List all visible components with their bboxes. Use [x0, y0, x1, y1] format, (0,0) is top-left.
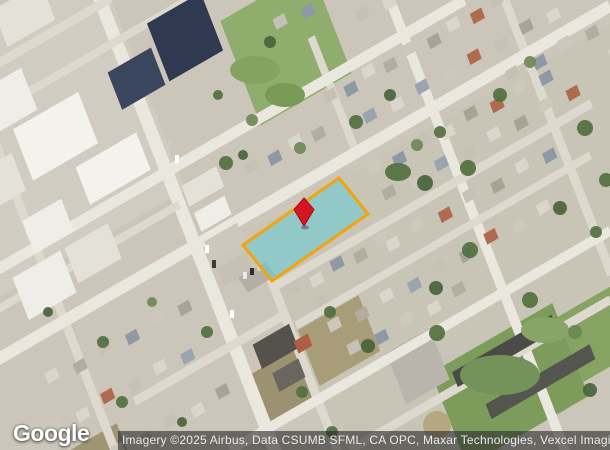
attribution-text: Imagery ©2025 Airbus, Data CSUMB SFML, C… — [122, 433, 610, 447]
google-logo[interactable]: Google — [13, 420, 89, 447]
satellite-imagery — [0, 0, 610, 450]
attribution-bar: Imagery ©2025 Airbus, Data CSUMB SFML, C… — [118, 431, 610, 450]
map-viewport[interactable]: Google Imagery ©2025 Airbus, Data CSUMB … — [0, 0, 610, 450]
